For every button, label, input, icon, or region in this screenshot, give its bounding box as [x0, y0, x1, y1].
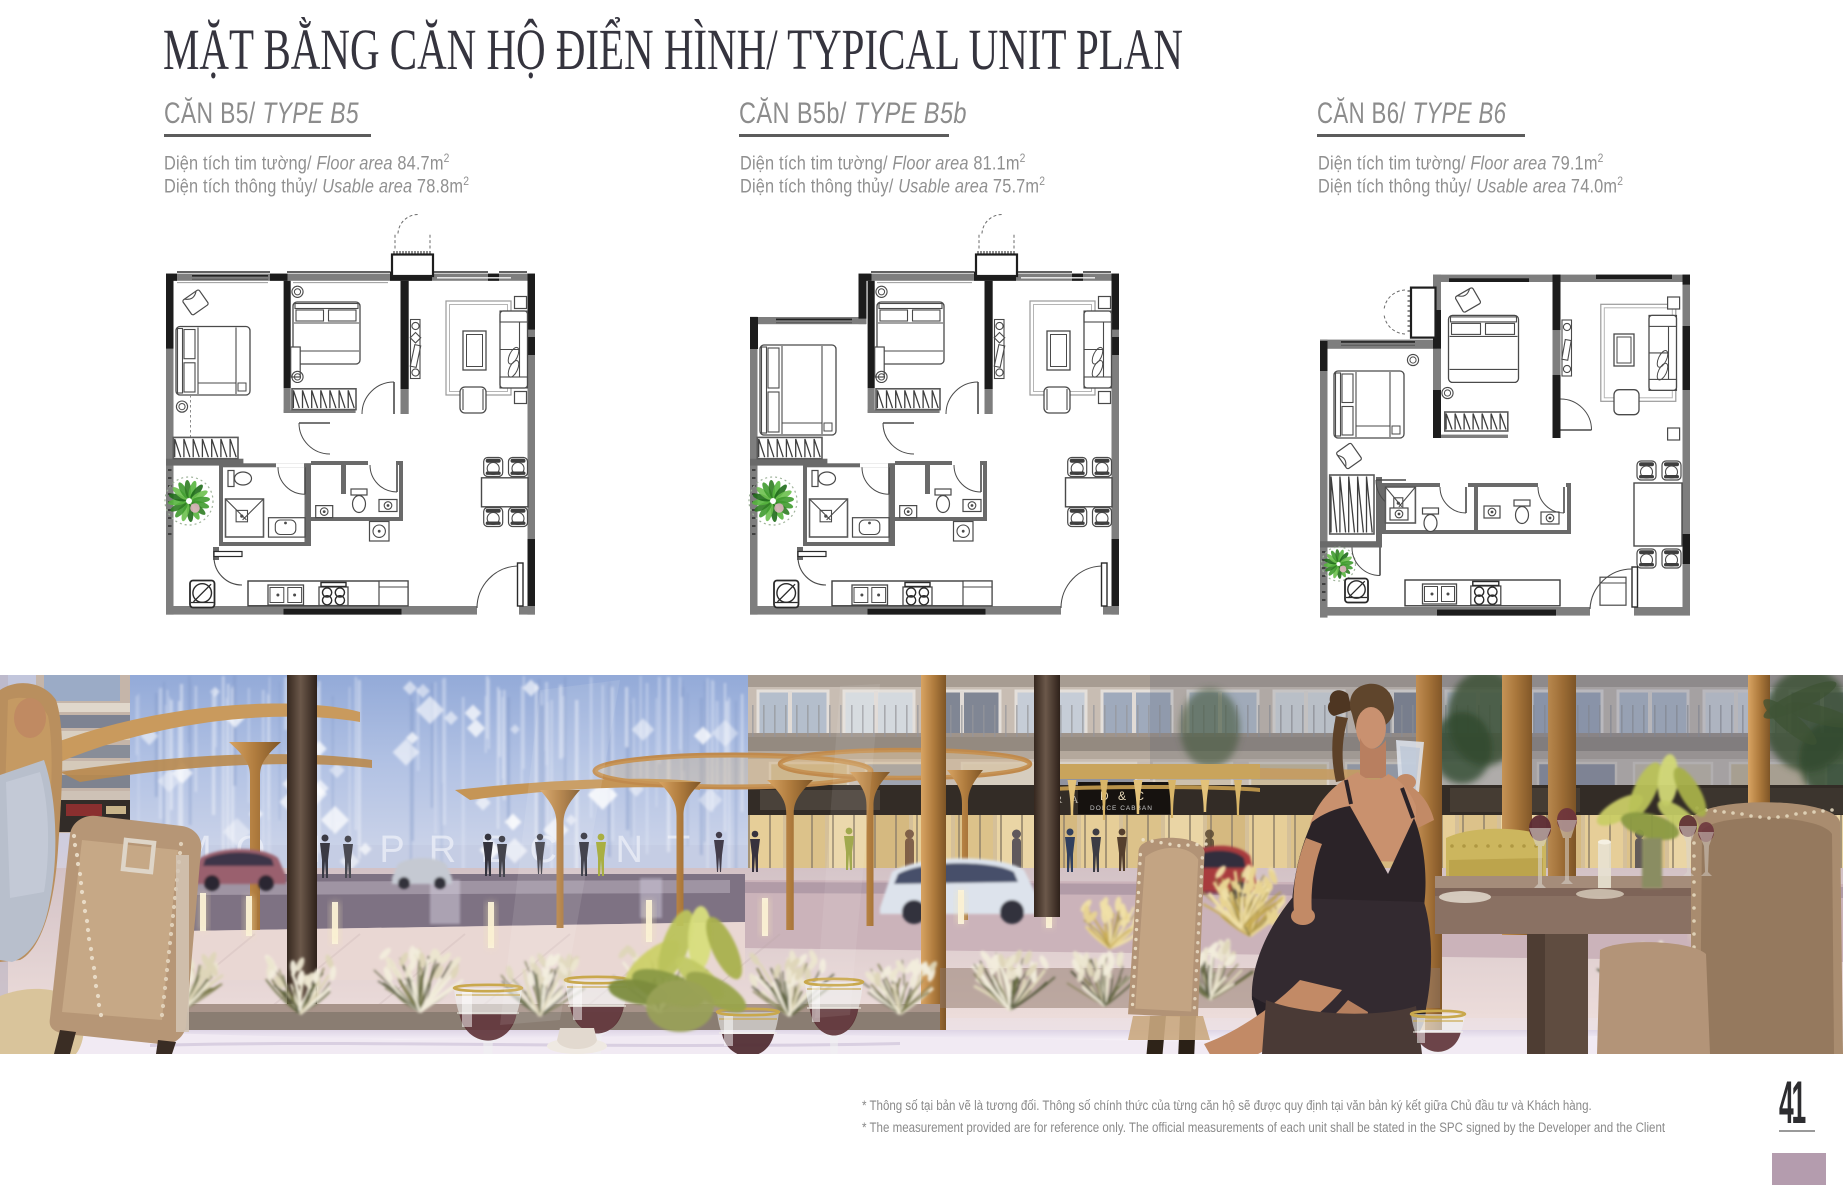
- svg-text:DOLCE CABBAN: DOLCE CABBAN: [1090, 805, 1153, 812]
